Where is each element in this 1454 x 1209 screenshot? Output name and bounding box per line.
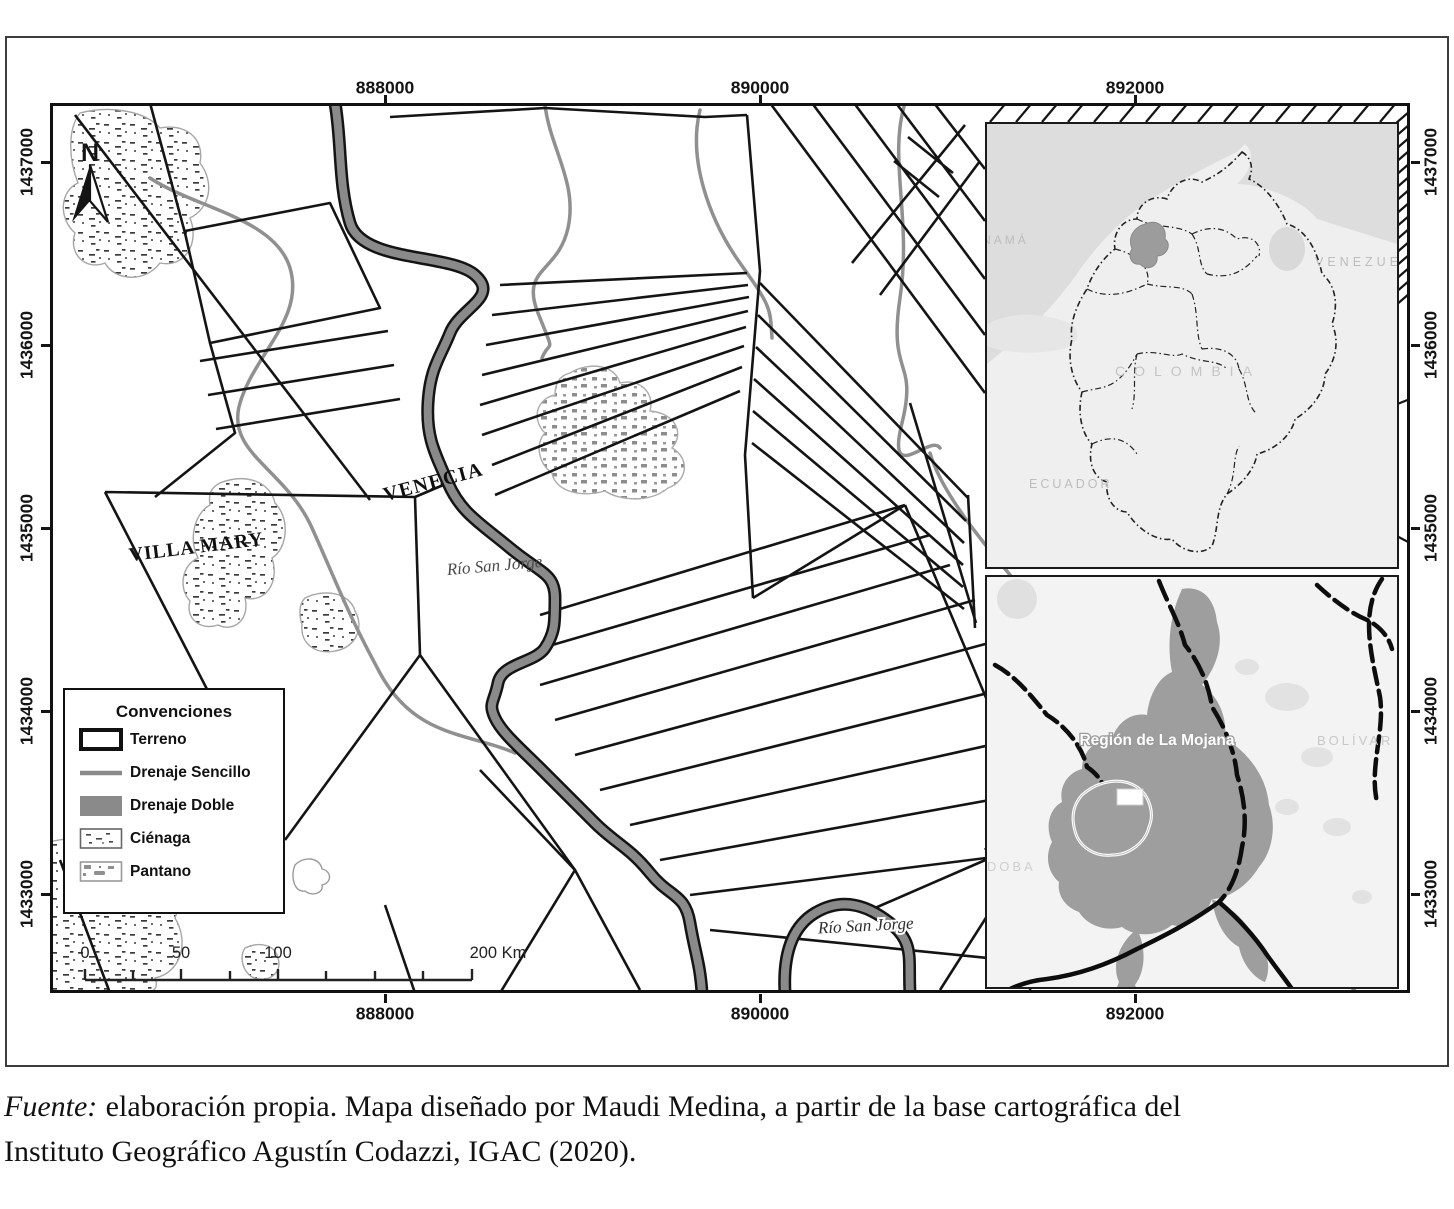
label-ecuador: ECUADOR	[1029, 477, 1113, 491]
y-tick-label: 1433000	[1421, 839, 1442, 949]
y-tick-label: 1433000	[17, 839, 38, 949]
inset-colombia-map: PANAMÁ VENEZUELA COLOMBIA ECUADOR	[985, 122, 1399, 569]
cienaga-swatch-icon	[78, 826, 124, 852]
legend: Convenciones Terreno Drenaje Sencillo Dr…	[63, 688, 285, 914]
figure-caption: Fuente:elaboración propia. Mapa diseñado…	[4, 1084, 1452, 1174]
terreno-swatch-icon	[78, 727, 124, 753]
map-figure: N VENECIA VILLA MARY Río San Jorge Río S…	[0, 0, 1454, 1209]
study-area-marker	[1117, 789, 1143, 805]
drenaje-doble-swatch-icon	[78, 793, 124, 819]
legend-item-cienaga: Ciénaga	[65, 823, 283, 854]
y-tick-label: 1437000	[17, 107, 38, 217]
y-tick-label: 1434000	[17, 656, 38, 766]
label-colombia: COLOMBIA	[1115, 363, 1261, 379]
x-tick-label: 892000	[1080, 1004, 1190, 1025]
y-tick-label: 1435000	[1421, 473, 1442, 583]
legend-title: Convenciones	[65, 702, 283, 722]
svg-text:0: 0	[80, 944, 89, 962]
y-tick-label: 1437000	[1421, 107, 1442, 217]
legend-item-drenaje-sencillo: Drenaje Sencillo	[65, 757, 283, 788]
legend-item-label: Pantano	[130, 863, 191, 881]
y-tick-label: 1434000	[1421, 656, 1442, 766]
legend-item-label: Drenaje Doble	[130, 797, 234, 815]
inset-mojana-map: Región de La Mojana BOLÍVAR CÓRDOBA	[985, 575, 1399, 989]
legend-item-label: Ciénaga	[130, 830, 190, 848]
label-panama: PANAMÁ	[985, 232, 1029, 247]
legend-item-label: Terreno	[130, 731, 187, 749]
label-bolivar: BOLÍVAR	[1317, 733, 1393, 748]
svg-text:200 Km: 200 Km	[470, 944, 527, 962]
caption-source-label: Fuente:	[4, 1090, 97, 1123]
label-cordoba: CÓRDOBA	[985, 859, 1036, 874]
y-tick-label: 1436000	[17, 290, 38, 400]
x-tick-label: 888000	[330, 1004, 440, 1025]
y-tick-label: 1436000	[1421, 290, 1442, 400]
legend-item-terreno: Terreno	[65, 724, 283, 755]
caption-line-2: Instituto Geográfico Agustín Codazzi, IG…	[4, 1129, 1452, 1174]
svg-text:100: 100	[264, 944, 292, 962]
pantano-swatch-icon	[78, 859, 124, 885]
legend-item-pantano: Pantano	[65, 856, 283, 887]
label-venezuela: VENEZUELA	[1315, 255, 1399, 269]
x-tick-label: 890000	[705, 1004, 815, 1025]
legend-item-label: Drenaje Sencillo	[130, 764, 251, 782]
svg-text:N: N	[81, 139, 99, 167]
label-region-mojana: Región de La Mojana	[1079, 732, 1234, 749]
legend-item-drenaje-doble: Drenaje Doble	[65, 790, 283, 821]
svg-text:50: 50	[172, 944, 190, 962]
drenaje-sencillo-swatch-icon	[78, 760, 124, 786]
lake	[1269, 227, 1305, 271]
y-tick-label: 1435000	[17, 473, 38, 583]
caption-line-1: Fuente:elaboración propia. Mapa diseñado…	[4, 1084, 1452, 1129]
study-municipality	[1073, 781, 1151, 855]
